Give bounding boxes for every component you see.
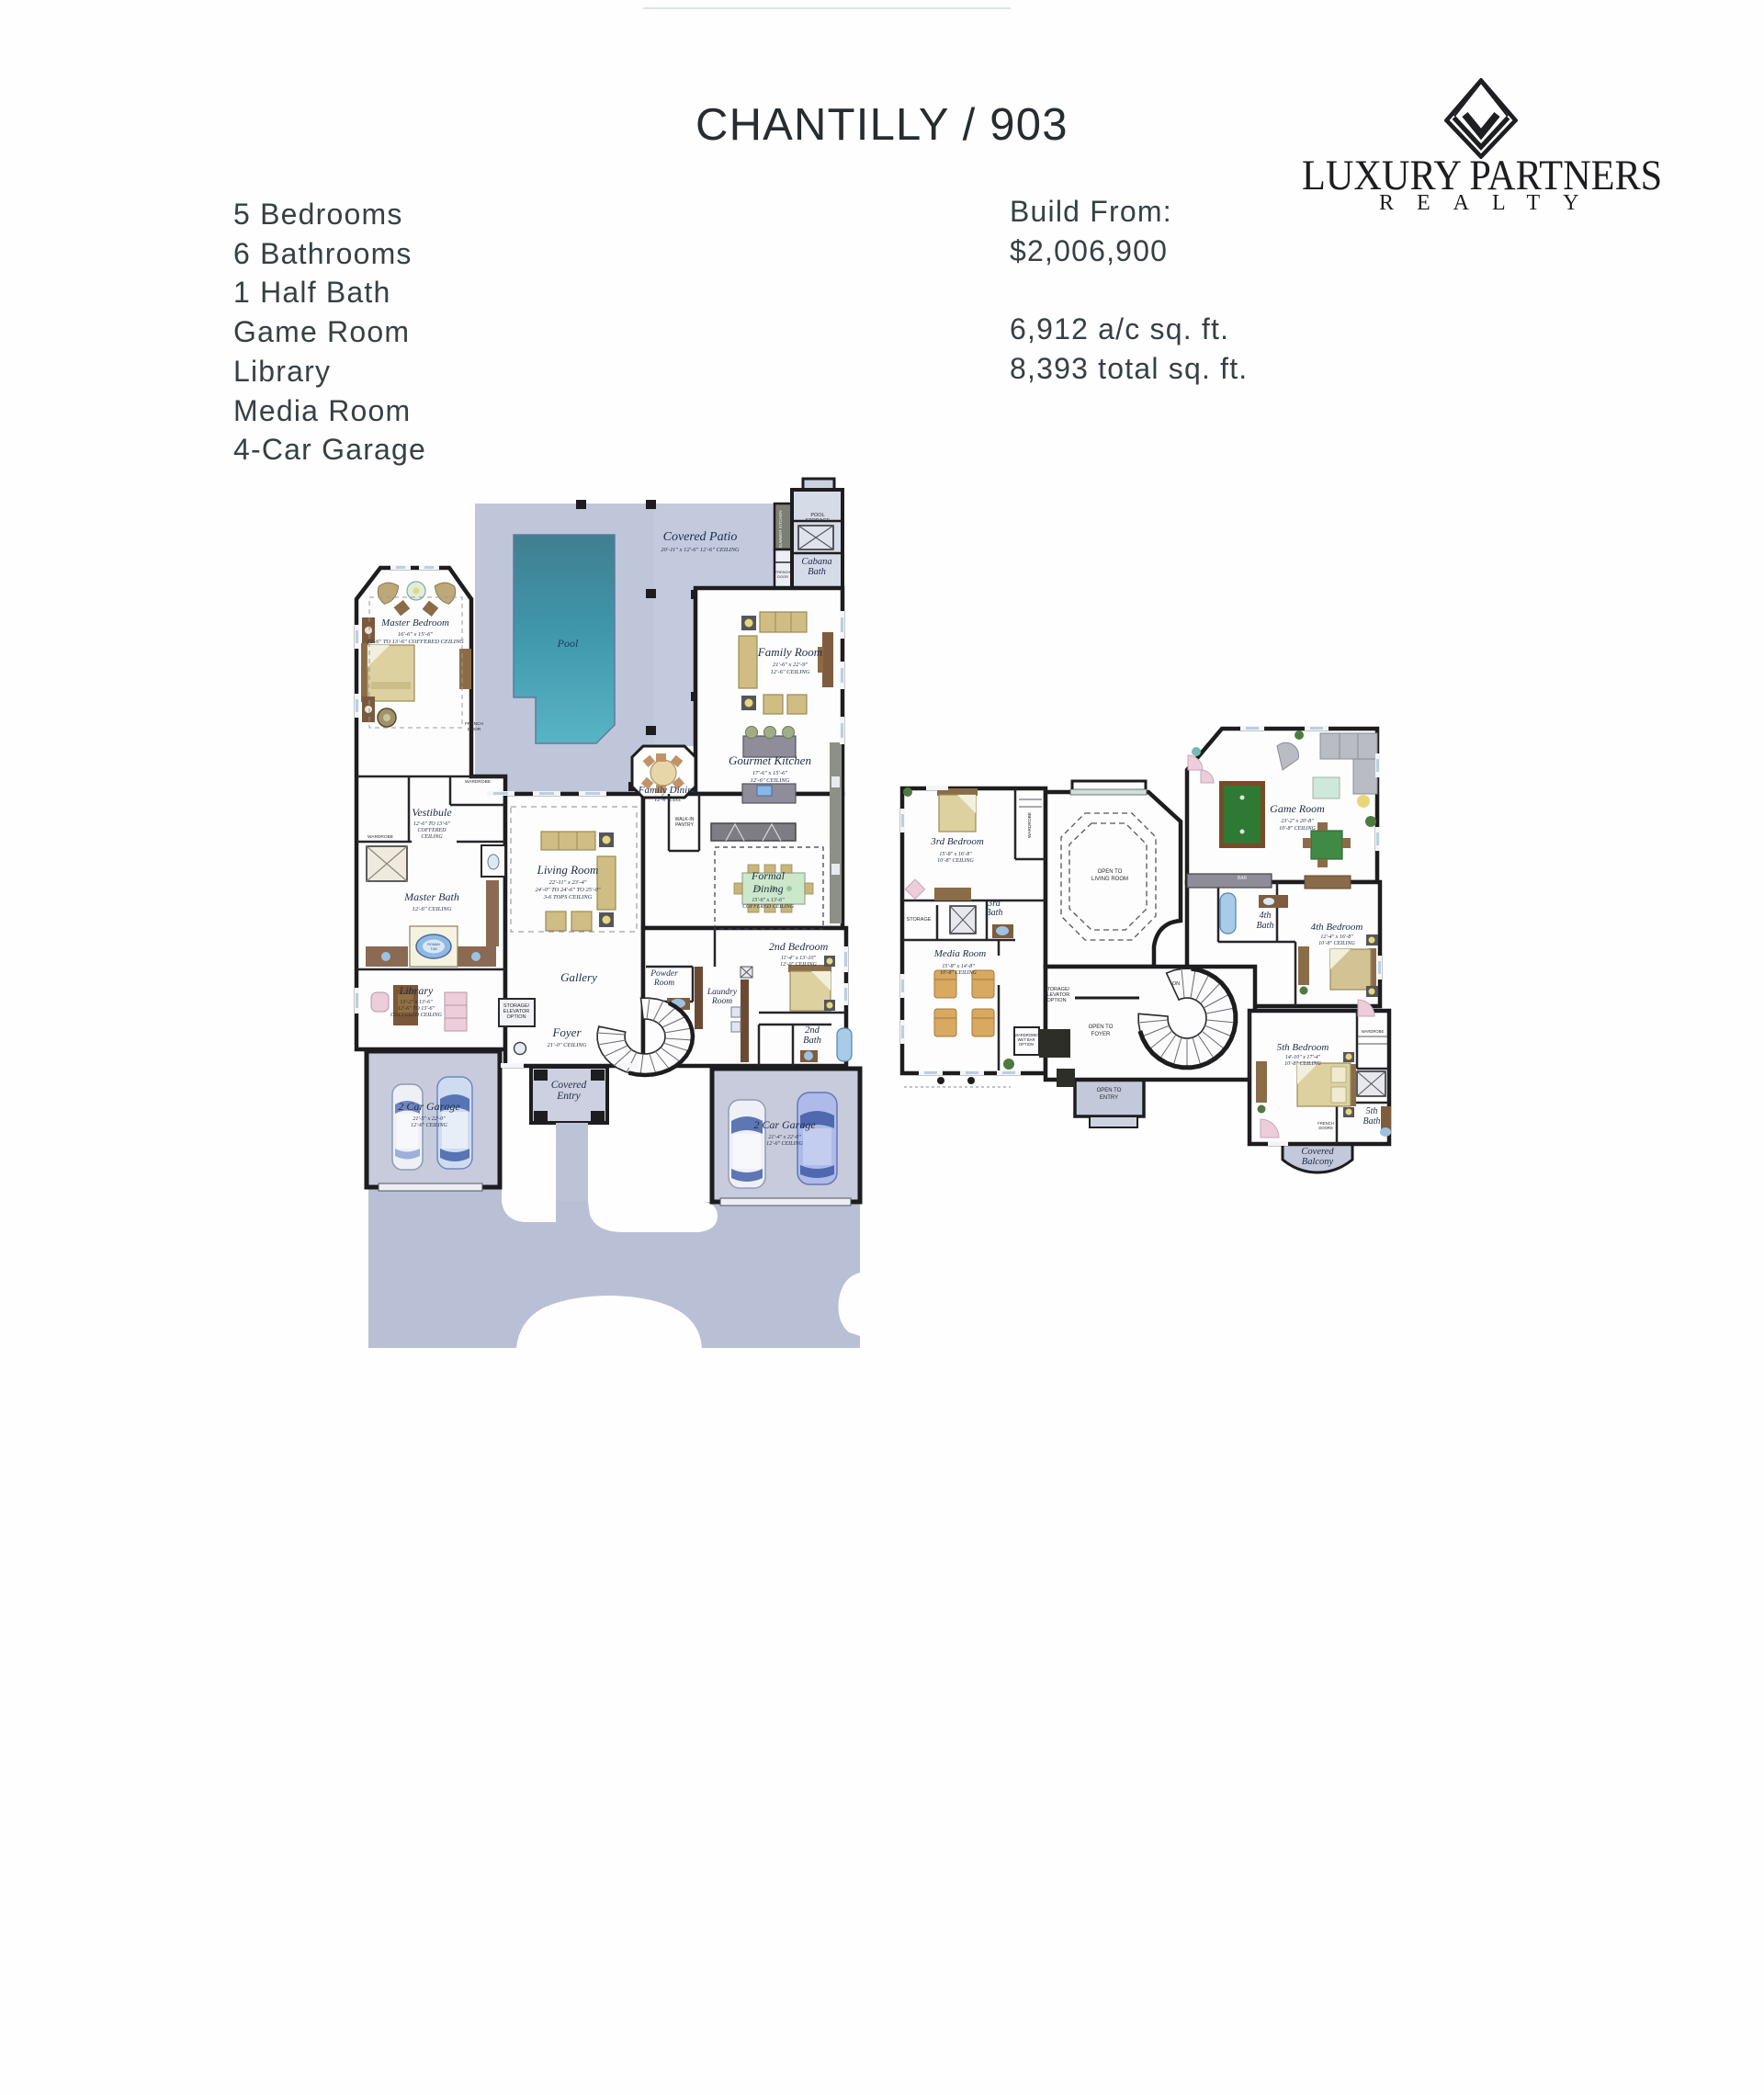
svg-text:21'-5" x 22'-0": 21'-5" x 22'-0" <box>413 1116 446 1122</box>
svg-text:Master Bath: Master Bath <box>403 890 459 903</box>
svg-text:2nd Bedroom: 2nd Bedroom <box>769 940 829 953</box>
svg-text:Room: Room <box>711 997 732 1006</box>
svg-text:Pool: Pool <box>557 637 579 650</box>
svg-text:ENTRY: ENTRY <box>1100 1095 1118 1101</box>
svg-text:2nd: 2nd <box>805 1025 820 1036</box>
svg-text:STORAGE: STORAGE <box>907 917 932 923</box>
svg-text:STORAGE: STORAGE <box>806 518 831 524</box>
svg-text:PANTRY: PANTRY <box>675 822 694 828</box>
svg-text:22'-11" x 23'-4": 22'-11" x 23'-4" <box>549 879 587 886</box>
svg-text:CEILING: CEILING <box>421 834 443 840</box>
svg-text:20'-11" x 12'-6" 12'-6" CEILI: 20'-11" x 12'-6" 12'-6" CEILING <box>661 547 740 553</box>
svg-text:Family Room: Family Room <box>757 645 822 659</box>
svg-text:ROMAN: ROMAN <box>427 943 440 946</box>
svg-text:Bath: Bath <box>1257 921 1274 931</box>
svg-text:13'-2" x 13'-6": 13'-2" x 13'-6" <box>400 1000 433 1005</box>
svg-text:Gourmet Kitchen: Gourmet Kitchen <box>729 753 811 767</box>
svg-text:5th Bedroom: 5th Bedroom <box>1277 1042 1329 1053</box>
svg-text:Gallery: Gallery <box>560 970 597 984</box>
svg-text:10'-8" CEILING: 10'-8" CEILING <box>1318 941 1355 946</box>
svg-text:21'-6" x 22'-9": 21'-6" x 22'-9" <box>773 662 808 668</box>
svg-text:10'-8" CEILING: 10'-8" CEILING <box>937 858 974 864</box>
svg-text:DOORS: DOORS <box>1318 1126 1333 1130</box>
svg-text:ON: ON <box>1172 981 1180 987</box>
svg-text:Cabana: Cabana <box>801 557 831 567</box>
svg-text:12'-6" CEILING: 12'-6" CEILING <box>751 777 790 784</box>
svg-text:DOOR: DOOR <box>468 727 481 732</box>
svg-text:23'-2" x 20'-8": 23'-2" x 20'-8" <box>1281 819 1314 824</box>
svg-text:Covered: Covered <box>1301 1147 1334 1157</box>
svg-text:COFFERED CEILING: COFFERED CEILING <box>742 904 794 910</box>
svg-text:Entry: Entry <box>556 1091 581 1102</box>
svg-text:Bath: Bath <box>803 1036 821 1046</box>
svg-text:Laundry: Laundry <box>707 988 738 997</box>
svg-text:Dining: Dining <box>752 882 783 895</box>
svg-text:OPEN TO: OPEN TO <box>1098 869 1123 875</box>
svg-text:10'-8" CEILING: 10'-8" CEILING <box>1284 1061 1321 1067</box>
svg-text:12'-6" CEILING: 12'-6" CEILING <box>771 669 810 675</box>
svg-text:TUB: TUB <box>430 947 437 951</box>
svg-text:Foyer: Foyer <box>551 1025 582 1039</box>
svg-text:4th: 4th <box>1260 911 1272 921</box>
svg-text:12'-6" CEILING: 12'-6" CEILING <box>411 1123 447 1128</box>
svg-text:4th Bedroom: 4th Bedroom <box>1311 922 1363 933</box>
svg-text:21'-0" CEILING: 21'-0" CEILING <box>548 1042 587 1048</box>
svg-text:10'-8" CEILING: 10'-8" CEILING <box>940 970 977 976</box>
svg-text:12'-6" CLG.: 12'-6" CLG. <box>654 798 681 803</box>
svg-text:Family Dining: Family Dining <box>638 785 698 796</box>
svg-text:FRENCH: FRENCH <box>465 721 484 727</box>
svg-text:Balcony: Balcony <box>1302 1157 1334 1167</box>
svg-text:11'-4" x 13'-10": 11'-4" x 13'-10" <box>781 955 816 961</box>
svg-text:WARDROBE: WARDROBE <box>1362 1029 1385 1034</box>
svg-text:Formal: Formal <box>751 869 786 882</box>
svg-text:DOOR: DOOR <box>777 574 788 579</box>
svg-text:15'-6" x 13'-6": 15'-6" x 13'-6" <box>752 898 785 903</box>
svg-text:16'-6" x 15'-6": 16'-6" x 15'-6" <box>398 631 433 638</box>
svg-text:12'-6" TO 13'-6": 12'-6" TO 13'-6" <box>413 821 451 827</box>
svg-text:OPEN TO: OPEN TO <box>1089 1025 1114 1030</box>
svg-text:OPTION: OPTION <box>506 1014 526 1020</box>
svg-text:BAR: BAR <box>1238 876 1248 881</box>
svg-text:OPTION: OPTION <box>1046 998 1066 1003</box>
svg-text:Game Room: Game Room <box>1270 802 1325 815</box>
svg-text:17'-6" x 15'-6": 17'-6" x 15'-6" <box>752 770 787 776</box>
svg-text:15'-8" x 14'-8": 15'-8" x 14'-8" <box>942 963 975 969</box>
svg-text:12'-0" CEILING: 12'-0" CEILING <box>780 962 817 968</box>
svg-text:Bath: Bath <box>1363 1116 1381 1127</box>
svg-text:SUMMER KITCHEN: SUMMER KITCHEN <box>778 510 783 548</box>
svg-text:5th: 5th <box>1366 1106 1378 1116</box>
svg-text:Covered: Covered <box>551 1080 587 1091</box>
svg-text:15'-8" x 16'-8": 15'-8" x 16'-8" <box>939 852 972 857</box>
svg-text:Living Room: Living Room <box>537 863 599 877</box>
svg-text:2 Car Garage: 2 Car Garage <box>753 1118 816 1131</box>
svg-text:Vestibule: Vestibule <box>412 806 452 819</box>
svg-text:2 Car Garage: 2 Car Garage <box>398 1100 460 1113</box>
svg-text:12'-6" CEILING: 12'-6" CEILING <box>766 1141 803 1147</box>
svg-text:WARDROBE: WARDROBE <box>367 834 393 840</box>
svg-text:Bath: Bath <box>986 908 1003 918</box>
svg-text:14'-10" x 17'-4": 14'-10" x 17'-4" <box>1285 1054 1321 1060</box>
svg-text:Powder: Powder <box>650 969 678 979</box>
svg-text:COFFERED: COFFERED <box>418 828 447 833</box>
svg-text:WARDROBE: WARDROBE <box>1027 812 1033 838</box>
svg-text:12'-6" TO 13'-6" COFFERED CEIL: 12'-6" TO 13'-6" COFFERED CEILING <box>367 639 464 645</box>
svg-text:12'-6" CEILING: 12'-6" CEILING <box>413 906 452 912</box>
svg-text:COFFERED CEILING: COFFERED CEILING <box>390 1013 442 1018</box>
svg-text:12'-4" x 16'-8": 12'-4" x 16'-8" <box>1320 934 1353 940</box>
svg-text:3-6 TOPS CEILING: 3-6 TOPS CEILING <box>543 894 593 900</box>
svg-text:24'-0" TO 24'-6" TO 25'-0": 24'-0" TO 24'-6" TO 25'-0" <box>536 887 601 893</box>
svg-text:3rd Bedroom: 3rd Bedroom <box>930 836 984 847</box>
svg-text:Covered Patio: Covered Patio <box>663 530 738 544</box>
svg-text:FOYER: FOYER <box>1091 1032 1111 1037</box>
svg-text:LIVING ROOM: LIVING ROOM <box>1091 877 1128 882</box>
svg-text:10'-8" CEILING: 10'-8" CEILING <box>1279 826 1316 832</box>
svg-text:WARDROBE: WARDROBE <box>465 779 491 785</box>
svg-text:Master Bedroom: Master Bedroom <box>380 617 449 628</box>
svg-text:21'-4" x 22'-0": 21'-4" x 22'-0" <box>768 1134 801 1140</box>
svg-text:Room: Room <box>653 979 674 988</box>
svg-text:12'-6" TO 13'-6": 12'-6" TO 13'-6" <box>398 1006 435 1012</box>
svg-text:Media Room: Media Room <box>933 948 987 959</box>
svg-text:OPTION: OPTION <box>1019 1042 1034 1047</box>
svg-text:Library: Library <box>399 984 434 997</box>
svg-text:OPEN TO: OPEN TO <box>1097 1088 1122 1093</box>
svg-text:Bath: Bath <box>808 567 826 577</box>
